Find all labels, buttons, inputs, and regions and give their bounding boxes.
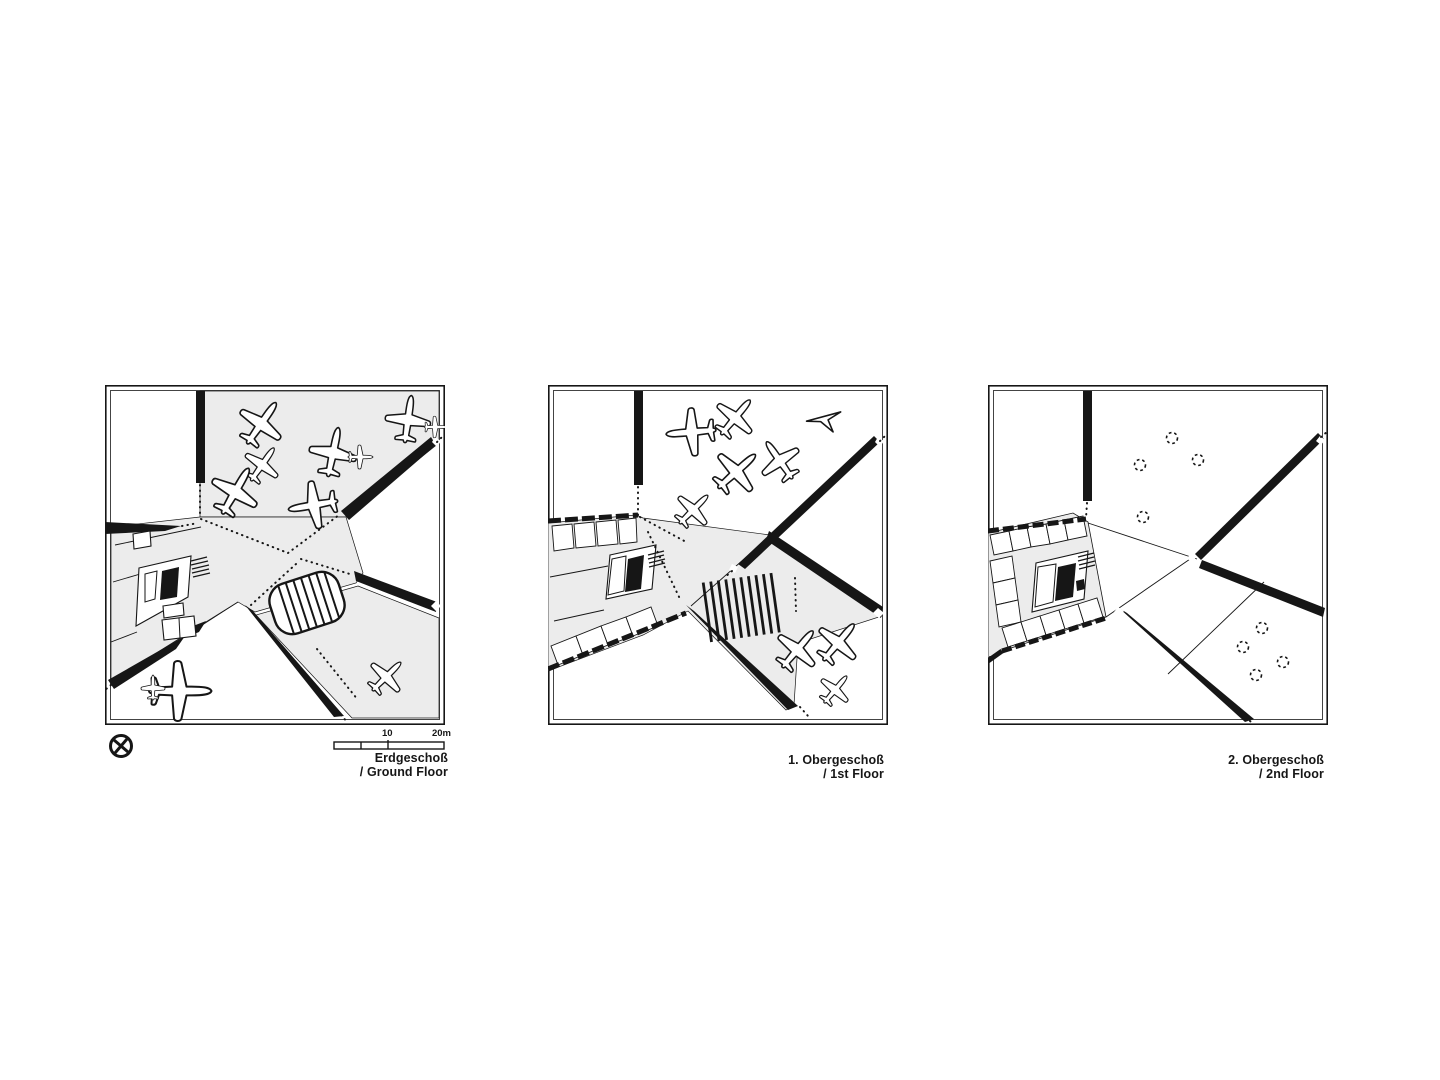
furniture-box [133,531,151,549]
caption-line-en: / 1st Floor [788,768,884,782]
caption-line-en: / 2nd Floor [1228,768,1324,782]
page: { "document": { "kind": "architectural-f… [0,0,1440,1080]
first-floor-drawing [548,385,888,725]
caption-line-de: Erdgeschoß [360,752,448,766]
caption-first-floor: 1. Obergeschoß / 1st Floor [788,754,884,781]
floor-plan-first-floor [548,385,888,725]
caption-ground-floor: Erdgeschoß / Ground Floor [360,752,448,779]
caption-line-de: 2. Obergeschoß [1228,754,1324,768]
caption-second-floor: 2. Obergeschoß / 2nd Floor [1228,754,1324,781]
caption-line-de: 1. Obergeschoß [788,754,884,768]
caption-line-en: / Ground Floor [360,766,448,780]
north-indicator-icon [106,731,138,763]
furniture-box [163,603,184,618]
scale-label-10: 10 [382,728,393,739]
second-floor-drawing [988,385,1328,725]
ground-floor-drawing [105,385,445,725]
floor-plan-ground-floor [105,385,445,725]
floor-plan-second-floor [988,385,1328,725]
scale-bar: 10 20m [333,729,449,753]
scale-label-20m: 20m [432,728,451,739]
